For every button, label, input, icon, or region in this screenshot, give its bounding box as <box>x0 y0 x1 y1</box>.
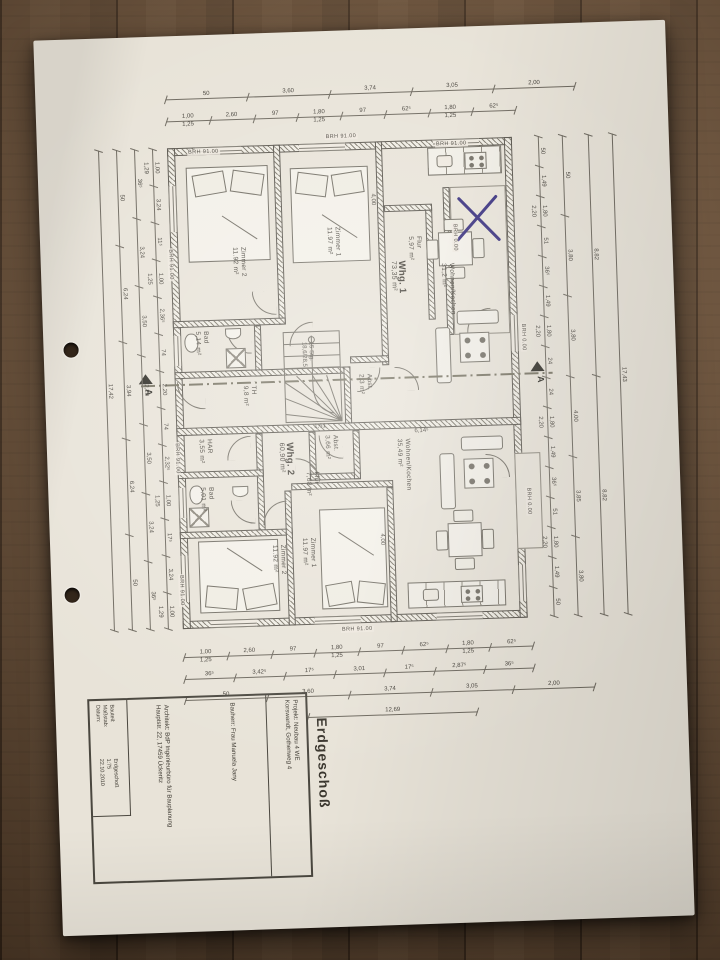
window <box>178 488 187 518</box>
dimension-segment: 36⁵ <box>184 670 234 686</box>
brh-label: BRH 0.00 <box>520 323 527 352</box>
chair <box>472 238 485 258</box>
dimension-segment: 3,50 <box>136 424 152 493</box>
room-label: Bad5,01 m² <box>198 487 215 512</box>
dimension-segment: 2,36⁵ <box>150 297 165 334</box>
bed <box>319 507 388 609</box>
pillow <box>295 172 328 198</box>
dimension-segment: 97 <box>271 646 315 661</box>
dimension-segment: 2,20 <box>152 370 167 407</box>
window <box>168 186 178 232</box>
coffee-table <box>463 458 494 489</box>
dimension-segment: 8,82 <box>581 134 603 375</box>
project-line: Projekt: Neubau 4 WE Korswandt, Gothenwe… <box>282 699 300 769</box>
dimension-segment: 17,43 <box>605 133 635 614</box>
dimension-segment: 51 <box>534 226 549 257</box>
chair <box>453 509 473 522</box>
wall-segment <box>180 528 293 539</box>
title-block: Bauteil: Maßstab: Datum: Erdgeschoß 1:75… <box>87 692 313 884</box>
floorplan-paper-sheet: A A Zimmer 211.92 m²Zimmer 111.97 m²Whg.… <box>33 20 694 936</box>
sofa <box>461 435 503 450</box>
dimension-segment: 17⁵ <box>384 664 434 680</box>
dimension-segment: 62⁵ <box>384 106 428 121</box>
brh-label: BRH 91.00 <box>174 442 181 475</box>
dimension-segment: 1,49 <box>541 436 556 467</box>
wall-segment <box>173 318 286 329</box>
sofa <box>439 453 456 509</box>
dimension-segment: 24 <box>539 376 554 407</box>
stove <box>464 152 487 170</box>
dimension-segment: 2,60 <box>227 647 271 662</box>
blanket-fold <box>222 216 258 240</box>
room-label: HAR3,55 m² <box>197 439 214 464</box>
room-label: Abst.2,3 m² <box>357 374 374 395</box>
dimension-segment: 3,85 <box>565 456 582 537</box>
dimension-segment: 1,001,25 <box>149 260 164 297</box>
dimension-segment: 12,69 <box>308 704 478 724</box>
dimension-segment: 36⁵ <box>535 256 550 287</box>
room-label: Zimmer 111.97 m² <box>300 538 317 568</box>
brh-label: BRH 0.00 <box>525 486 532 515</box>
shower <box>226 348 247 369</box>
door-swing <box>394 366 419 391</box>
dimension-segment: 36⁵ <box>127 149 143 218</box>
door-swing <box>263 501 288 526</box>
dimension-segment: 3,24 <box>158 555 173 592</box>
room-label: Flur5,97 m² <box>406 236 423 261</box>
dimension-segment: 2,60 <box>210 111 254 126</box>
dimension-segment: 3,94 <box>115 342 132 439</box>
dimension-segment: 1,801,25 <box>315 644 359 659</box>
window <box>173 336 182 366</box>
wall-segment <box>375 141 389 365</box>
dimension-segment: 11⁵ <box>147 223 162 260</box>
room-label: Whg. 173,35 m² <box>389 261 406 294</box>
dimension-segment: 2,20 <box>134 355 150 424</box>
dimension-segment: 74 <box>151 334 166 371</box>
dimension-segment: 62⁵ <box>402 641 446 656</box>
brh-label: BRH 91.00 <box>167 248 174 281</box>
dimension-segment: 24 <box>538 346 553 377</box>
dimension-segment: 97 <box>359 643 403 658</box>
room-label: Wohnen/Kochen35,49 m² <box>395 438 413 490</box>
dimension-segment: 51 <box>543 496 558 527</box>
dimension-segment: 36⁵ <box>484 660 534 676</box>
brh-label: BRH 91.00 <box>187 149 220 156</box>
dimension-segment: 74 <box>154 407 169 444</box>
pillow <box>331 170 365 197</box>
dimension-chain: 1,001,252,60971,801,259762⁵1,801,2562⁵ <box>184 638 534 664</box>
pillow <box>230 170 265 196</box>
room-label: Bad5,14 m² <box>193 331 210 356</box>
plan-annotation: 1,61 <box>314 423 326 430</box>
bed <box>186 165 271 263</box>
room-label: Abst.3,66 m² <box>323 435 340 460</box>
blanket-fold <box>338 532 374 556</box>
dimension-segment: 3,50 <box>132 287 148 356</box>
dimension-segment: 36⁵ <box>542 466 557 497</box>
brh-label: BRH 91.00 <box>341 626 374 633</box>
door-swing <box>231 500 256 525</box>
door-swing <box>252 291 277 316</box>
dimension-segment: 3,24 <box>146 186 161 223</box>
dimension-chain: 1,001,252,60971,801,259762⁵1,801,2562⁵ <box>166 103 516 129</box>
wall-segment <box>352 430 361 479</box>
brh-label: BRH 0.00 <box>452 223 459 252</box>
coffee-table <box>459 332 490 363</box>
dimension-segment: 2,00 <box>513 679 595 696</box>
wall-segment <box>174 366 350 379</box>
plan-annotation: 6,14⁵ <box>414 428 428 435</box>
dimension-segment: 2,87⁵ <box>434 662 484 678</box>
room-label: Zimmer 111.97 m² <box>325 227 342 257</box>
dining-table <box>448 522 483 557</box>
chair <box>455 557 475 570</box>
kitchen-sink <box>423 589 439 602</box>
plan-annotation: 4,00 <box>369 193 376 205</box>
dimension-segment: 36⁵ <box>141 561 157 630</box>
dimension-segment: 3,80 <box>560 295 577 376</box>
dimension-segment: 3,74 <box>349 685 431 702</box>
client-line: Bauherr: Frau Manuela Jany <box>227 702 238 781</box>
pillow <box>325 581 355 607</box>
dimension-segment: 17⁵ <box>284 667 334 683</box>
dimension-segment: 50 <box>531 136 546 167</box>
dimension-segment: 4,00 <box>563 375 580 456</box>
dimension-segment: 3,24 <box>138 493 154 562</box>
window <box>211 619 257 629</box>
dimension-chain: 12,69 <box>308 704 478 724</box>
brh-label: BRH 91.00 <box>178 574 185 607</box>
dimension-segment: 3,05 <box>431 682 513 699</box>
title-block-info-box: Bauteil: Maßstab: Datum: Erdgeschoß 1:75… <box>89 700 131 817</box>
dimension-segment: 97 <box>253 110 297 125</box>
window <box>315 615 361 625</box>
dimension-segment: 1,001,25 <box>166 113 210 128</box>
dimension-segment: 3,01 <box>334 665 384 681</box>
dimension-segment: 1,001,25 <box>184 649 228 664</box>
door-swing <box>227 436 252 461</box>
kitchen-counter <box>407 579 506 608</box>
dimension-segment: 8,82 <box>589 375 611 616</box>
chair <box>426 239 439 259</box>
plan-annotation: 15 Stg. 18,6/28,5 <box>299 342 314 367</box>
dimension-segment: 50 <box>109 150 126 247</box>
wall-segment <box>425 208 436 320</box>
sheet-title: Erdgeschoß <box>314 717 333 808</box>
tb-field-values: Erdgeschoß 1:75 22.10.2010 <box>97 758 119 788</box>
dimension-segment: 1,801,25 <box>428 104 472 119</box>
room-label: TH9,8 m² <box>241 386 258 407</box>
dimension-segment: 3,42⁵ <box>234 669 284 685</box>
pillow <box>357 580 386 605</box>
kitchen-counter <box>427 145 502 175</box>
dimension-segment: 3,80 <box>568 536 585 617</box>
dimension-segment: 3,24 <box>129 218 145 287</box>
dimension-segment: 6,24 <box>119 438 136 535</box>
dimension-segment: 1,001,29 <box>160 592 175 629</box>
bed <box>198 539 280 614</box>
terrace-door <box>510 315 519 351</box>
dimension-segment: 50 <box>555 135 572 216</box>
dimension-segment: 1,49 <box>536 286 551 317</box>
pillow <box>205 585 239 610</box>
dimension-segment: 3,80 <box>557 215 574 296</box>
chair <box>482 529 495 549</box>
room-label: Zimmer 211.92 m² <box>230 247 247 277</box>
project-box: Projekt: Neubau 4 WE Korswandt, Gothenwe… <box>265 694 311 876</box>
dimension-segment: 1,802,20 <box>533 196 548 227</box>
pillow <box>192 170 227 197</box>
wall-segment <box>178 469 264 479</box>
dimension-segment: 1,001,25 <box>156 481 171 518</box>
dimension-segment: 50 <box>165 90 247 107</box>
architect-line: Architekt: BdP Ingenieurbüro für Bauplan… <box>153 705 173 828</box>
plan-annotation: 4,00 <box>378 533 385 545</box>
brh-label: BRH 91.00 <box>435 140 468 147</box>
stove <box>461 585 484 603</box>
sofa <box>457 309 499 324</box>
dimension-segment: 50 <box>122 534 139 631</box>
dimension-segment: 2,32⁵ <box>155 444 170 481</box>
kitchen-sink <box>436 155 452 168</box>
dimension-chain: 503,803,804,003,853,80 <box>555 135 585 616</box>
dimension-segment: 1,801,25 <box>297 109 341 124</box>
pillow <box>242 583 278 611</box>
window <box>437 611 483 621</box>
wall-segment <box>350 355 389 363</box>
dimension-segment: 17⁵ <box>157 518 172 555</box>
washbasin <box>232 486 248 498</box>
window <box>518 565 527 601</box>
dimension-segment: 62⁵ <box>490 638 534 653</box>
chair <box>436 530 449 550</box>
dimension-segment: 1,802,20 <box>537 316 552 347</box>
room-label: Wohnen/Kochen31,2 m² <box>439 263 457 315</box>
dimension-segment: 3,60 <box>247 87 329 104</box>
dimension-segment: 62⁵ <box>472 103 516 118</box>
dimension-segment: 1,49 <box>532 166 547 197</box>
dimension-chain: 17,43 <box>605 133 635 614</box>
dimension-segment: 1,49 <box>545 556 560 587</box>
room-label: Flur7,68 m² <box>304 471 321 496</box>
dimension-segment: 6,24 <box>112 246 129 343</box>
dimension-segment: 1,801,25 <box>446 640 490 655</box>
window <box>299 142 345 152</box>
brh-label: BRH 91.00 <box>325 133 358 140</box>
wall-segment <box>343 366 352 429</box>
tb-field-labels: Bauteil: Maßstab: Datum: <box>93 704 115 727</box>
dimension-segment: 1,802,20 <box>540 406 555 437</box>
dimension-segment: 3,05 <box>411 82 493 99</box>
dimension-segment: 3,74 <box>329 84 411 101</box>
room-label: Zimmer 211.92 m² <box>270 545 287 575</box>
dimension-segment: 50 <box>546 587 561 618</box>
dimension-segment: 2,00 <box>493 79 575 96</box>
dimension-segment: 97 <box>341 107 385 122</box>
dimension-segment: 1,001,29 <box>145 149 160 186</box>
dimension-segment: 1,802,20 <box>544 526 559 557</box>
room-label: Whg. 260,90 m² <box>277 442 294 475</box>
blanket-fold <box>227 548 263 572</box>
